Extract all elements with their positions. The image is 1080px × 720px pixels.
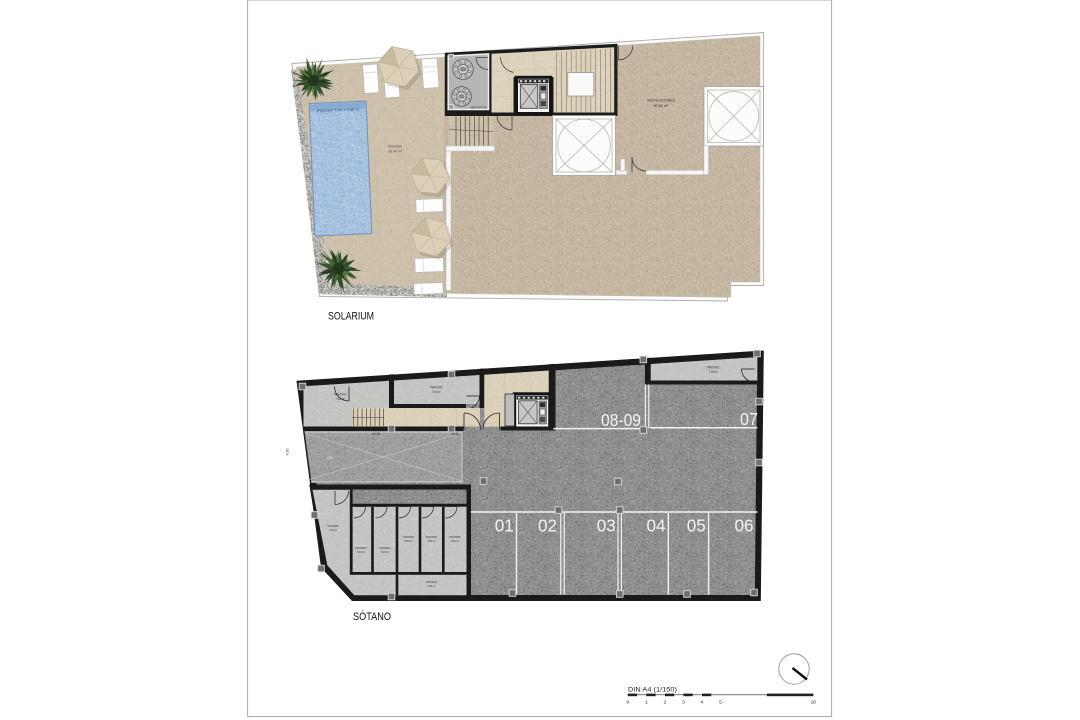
svg-text:5,40 m²: 5,40 m² bbox=[357, 550, 365, 554]
svg-text:TRASTERO: TRASTERO bbox=[430, 386, 443, 390]
svg-text:INSTALACIONES: INSTALACIONES bbox=[647, 99, 676, 103]
svg-text:DIN A4 (1/150): DIN A4 (1/150) bbox=[628, 687, 677, 694]
svg-text:TRASTERO: TRASTERO bbox=[707, 366, 720, 370]
svg-text:3,50 m²: 3,50 m² bbox=[451, 539, 459, 543]
svg-text:67,60 m²: 67,60 m² bbox=[654, 104, 669, 108]
svg-text:07: 07 bbox=[740, 409, 758, 429]
svg-text:SÓTANO: SÓTANO bbox=[353, 610, 391, 623]
svg-text:08-09: 08-09 bbox=[601, 410, 641, 430]
svg-text:10: 10 bbox=[811, 700, 817, 706]
svg-text:7,50 m²: 7,50 m² bbox=[432, 390, 441, 394]
svg-text:1: 1 bbox=[645, 700, 648, 706]
svg-text:15%: 15% bbox=[327, 456, 335, 460]
svg-text:04: 04 bbox=[647, 516, 666, 536]
svg-text:36,46 m²: 36,46 m² bbox=[388, 150, 403, 154]
svg-text:4,00: 4,00 bbox=[372, 432, 380, 436]
svg-text:4: 4 bbox=[701, 700, 704, 706]
svg-text:4,00: 4,00 bbox=[286, 448, 290, 455]
svg-text:PISCINA: PISCINA bbox=[388, 145, 403, 149]
svg-text:-0,00: -0,00 bbox=[451, 432, 459, 436]
svg-text:02: 02 bbox=[538, 516, 557, 536]
svg-text:03: 03 bbox=[597, 516, 616, 536]
svg-text:5,30 m²: 5,30 m² bbox=[381, 550, 389, 554]
svg-text:7,50 m²: 7,50 m² bbox=[329, 528, 337, 532]
svg-text:01: 01 bbox=[495, 516, 514, 536]
svg-text:3,50 m²: 3,50 m² bbox=[428, 539, 436, 543]
svg-text:06: 06 bbox=[735, 516, 754, 536]
svg-text:SOLARIUM: SOLARIUM bbox=[328, 311, 374, 323]
svg-text:6,50 m²: 6,50 m² bbox=[428, 584, 436, 588]
svg-text:TRASTERO: TRASTERO bbox=[334, 393, 347, 397]
svg-text:7,26 m²: 7,26 m² bbox=[709, 370, 718, 374]
svg-text:3,50 m²: 3,50 m² bbox=[405, 539, 413, 543]
svg-text:05: 05 bbox=[687, 516, 706, 536]
svg-text:2: 2 bbox=[664, 700, 667, 706]
svg-text:DEPOSITOS: DEPOSITOS bbox=[470, 106, 487, 110]
svg-text:5: 5 bbox=[719, 700, 722, 706]
svg-text:0: 0 bbox=[626, 700, 629, 706]
svg-text:3: 3 bbox=[682, 700, 685, 706]
